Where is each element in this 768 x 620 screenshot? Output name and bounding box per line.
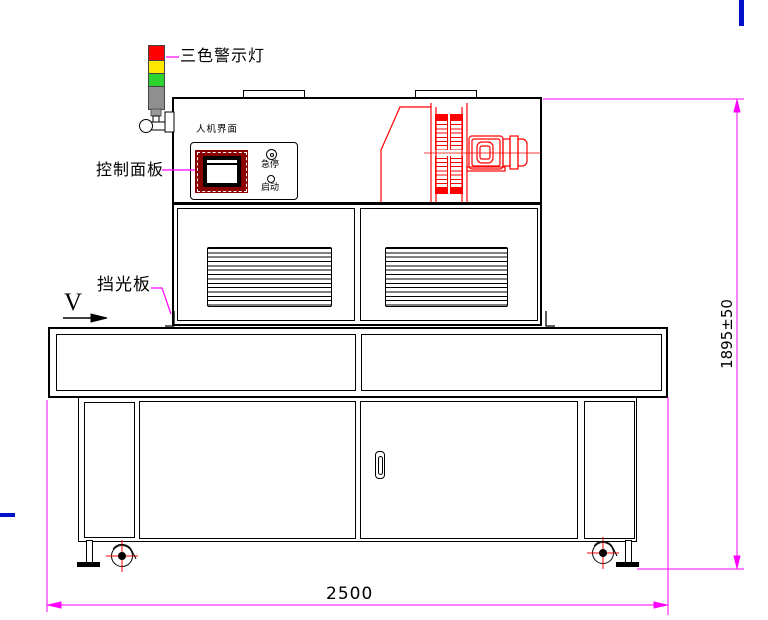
- touchscreen-screen: [207, 160, 237, 183]
- louver-vent-right: [385, 247, 508, 307]
- light-shield-bracket-right: [546, 311, 555, 326]
- base-panel-right: [584, 401, 635, 539]
- viewport-mark-top-right: [739, 0, 744, 26]
- conveyor-belt-left: [56, 334, 356, 391]
- blower-vent-cap: [450, 188, 463, 194]
- estop-label: 急停: [261, 161, 279, 171]
- start-button-icon: [267, 175, 275, 183]
- base-door-left: [139, 401, 356, 539]
- warning-light-green-segment: [148, 73, 165, 87]
- direction-symbol: V: [64, 289, 82, 317]
- touchscreen-bezel-line: [207, 163, 237, 165]
- viewport-mark-left: [0, 513, 15, 517]
- warning-light-base-segment: [148, 86, 165, 110]
- hmi-label: 人机界面: [196, 125, 238, 135]
- leveling-foot-right-stem: [625, 540, 632, 563]
- start-label: 启动: [261, 184, 279, 194]
- warning-light-yellow-segment: [148, 60, 165, 74]
- louver-vent-left: [207, 247, 332, 307]
- blower-vent-cap: [450, 114, 463, 120]
- light-shield-label: 挡光板: [97, 276, 151, 295]
- warning-light-mount: [140, 109, 175, 133]
- conveyor-belt-right: [361, 334, 662, 391]
- leveling-foot-right-plate: [616, 562, 639, 567]
- warning-light-label: 三色警示灯: [180, 47, 265, 65]
- control-panel-label: 控制面板: [96, 161, 164, 179]
- leveling-foot-left-stem: [86, 540, 93, 563]
- leveling-foot-left-plate: [77, 562, 100, 567]
- blower-centerline-gap: [433, 150, 465, 156]
- light-shield-leader: [151, 288, 171, 314]
- warning-light-red-segment: [148, 45, 165, 61]
- blower-vent-cap: [435, 188, 448, 194]
- estop-button-inner: [270, 153, 274, 157]
- caster-left: [106, 540, 138, 572]
- base-panel-left: [84, 402, 135, 538]
- width-dimension-label: 2500: [326, 585, 373, 604]
- blower-vent-cap: [435, 114, 448, 120]
- cad-drawing: 三色警示灯 人机界面 控制面板 急停 启动 挡光板 V 2500 1895±50: [0, 0, 768, 620]
- base-door-right: [360, 401, 578, 539]
- door-handle-grip: [378, 456, 383, 475]
